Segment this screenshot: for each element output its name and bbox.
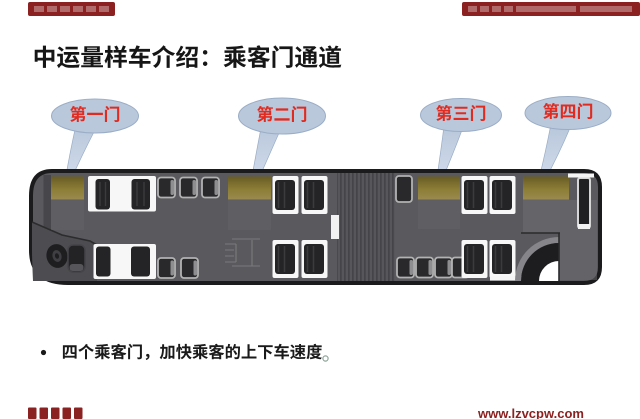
- svg-text:www.lzvcpw.com: www.lzvcpw.com: [477, 406, 584, 419]
